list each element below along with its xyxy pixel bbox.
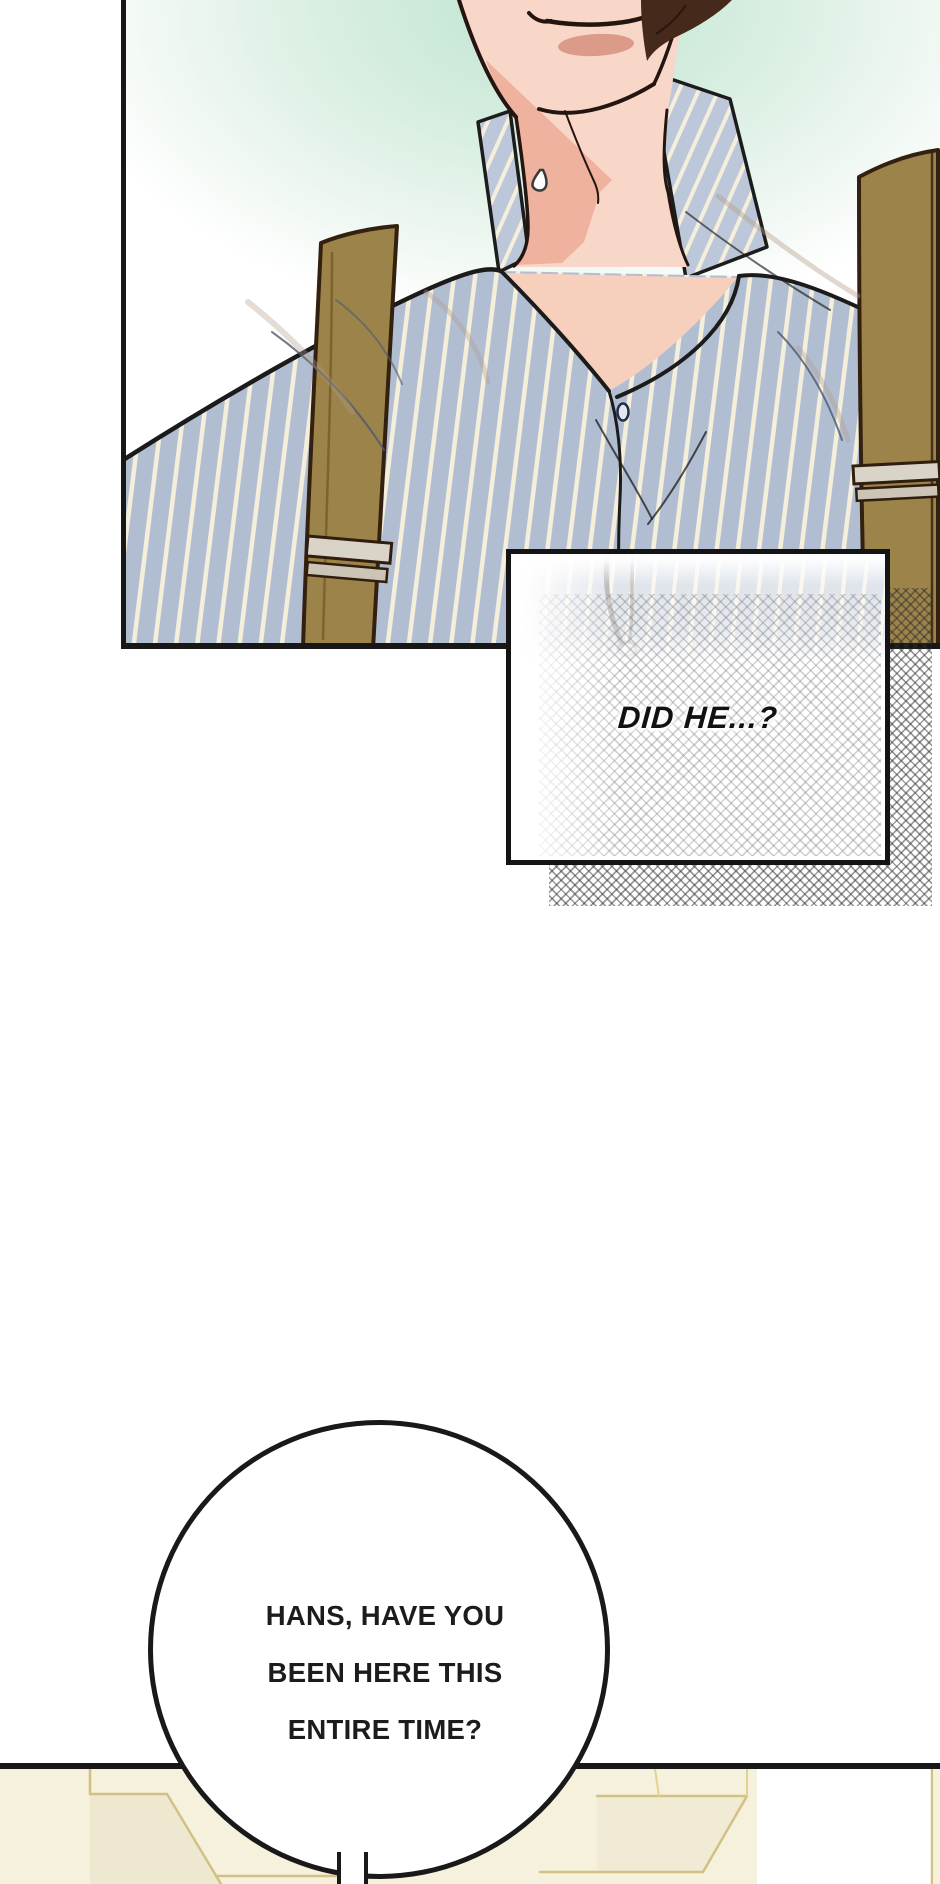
speech-bubble: HANS, HAVE YOU BEEN HERE THIS ENTIRE TIM…: [148, 1420, 610, 1879]
comic-page: { "page": { "type": "webtoon-comic-page"…: [0, 0, 940, 1884]
character-illustration: [126, 0, 940, 643]
speech-line-2: BEEN HERE THIS: [268, 1644, 503, 1701]
suspender-buckle-right: [853, 461, 940, 500]
speech-line-1: HANS, HAVE YOU: [266, 1587, 505, 1644]
speech-bubble-tail: [337, 1852, 368, 1884]
speech-line-3: ENTIRE TIME?: [288, 1701, 483, 1758]
narration-text: DID HE...?: [510, 700, 887, 736]
narration-box: DID HE...?: [506, 549, 890, 865]
shirt-button: [618, 404, 629, 421]
